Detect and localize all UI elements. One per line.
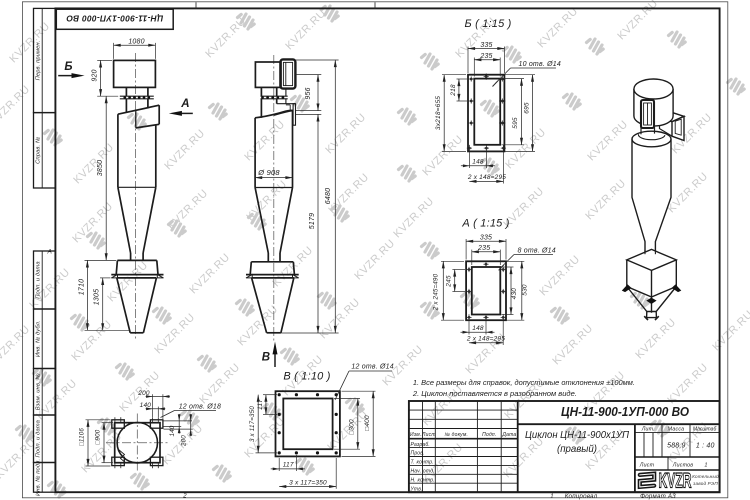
svg-text:Изм.: Изм. [410, 432, 421, 438]
svg-text:140: 140 [140, 402, 152, 409]
svg-text:Инв. № подл.: Инв. № подл. [35, 459, 41, 496]
svg-text:956: 956 [305, 87, 312, 99]
svg-text:Лит.: Лит. [641, 426, 655, 432]
svg-text:□900: □900 [95, 429, 102, 444]
svg-text:3 х 117=350: 3 х 117=350 [289, 479, 327, 486]
svg-text:ЦН-11-900-1УП-000 ВО: ЦН-11-900-1УП-000 ВО [561, 405, 689, 419]
svg-text:2 х 245=490: 2 х 245=490 [433, 273, 440, 311]
svg-text:□1106: □1106 [79, 428, 86, 446]
svg-text:Ø 908: Ø 908 [257, 168, 280, 177]
svg-text:430: 430 [511, 288, 518, 300]
svg-text:Формат А3: Формат А3 [640, 493, 676, 500]
svg-text:Т. контр.: Т. контр. [411, 460, 434, 466]
svg-text:595: 595 [512, 117, 519, 129]
svg-text:А: А [180, 98, 190, 110]
svg-text:148: 148 [472, 325, 484, 332]
svg-text:Разраб.: Разраб. [411, 442, 431, 448]
svg-text:Инв. № дубл.: Инв. № дубл. [35, 320, 41, 357]
svg-text:завод РЭП: завод РЭП [692, 481, 718, 486]
svg-text:Котельный: Котельный [692, 473, 719, 479]
svg-text:920: 920 [91, 69, 98, 81]
svg-text:Дата: Дата [501, 432, 516, 438]
svg-text:(правый): (правый) [557, 443, 597, 455]
svg-text:Нач. отд.: Нач. отд. [411, 469, 435, 475]
svg-text:Перв. примен.: Перв. примен. [35, 41, 41, 81]
svg-text:1: 1 [550, 494, 554, 500]
svg-text:335: 335 [480, 235, 492, 242]
svg-text:Подп. и дата: Подп. и дата [35, 419, 41, 457]
svg-text:Б ( 1:15 ): Б ( 1:15 ) [464, 18, 511, 30]
svg-text:1080: 1080 [128, 39, 144, 46]
svg-text:140: 140 [169, 425, 176, 436]
svg-text:В ( 1:10 ): В ( 1:10 ) [283, 371, 330, 383]
svg-text:1710: 1710 [78, 279, 85, 295]
svg-text:В: В [262, 352, 271, 364]
svg-text:2. Циклон поставляется в разоб: 2. Циклон поставляется в разобранном вид… [412, 389, 577, 398]
svg-text:А ( 1:15 ): А ( 1:15 ) [461, 218, 509, 230]
svg-text:235: 235 [477, 245, 490, 252]
svg-text:3х218=655: 3х218=655 [435, 96, 442, 130]
svg-text:Б: Б [64, 61, 72, 73]
svg-text:А: А [47, 249, 53, 256]
svg-text:Утв.: Утв. [411, 486, 423, 492]
svg-text:3850: 3850 [97, 160, 104, 176]
svg-text:695: 695 [523, 102, 530, 114]
svg-text:588,9: 588,9 [667, 443, 686, 450]
svg-text:Н. контр.: Н. контр. [411, 477, 435, 483]
svg-text:8 отв. Ø14: 8 отв. Ø14 [518, 248, 556, 255]
svg-text:KVZR: KVZR [659, 470, 692, 493]
svg-text:148: 148 [472, 159, 484, 166]
svg-text:10 отв. Ø14: 10 отв. Ø14 [519, 61, 561, 68]
svg-text:1 : 40: 1 : 40 [696, 443, 715, 450]
svg-text:245: 245 [445, 275, 452, 288]
svg-text:117: 117 [283, 462, 294, 469]
svg-text:Масштаб: Масштаб [693, 426, 717, 432]
svg-text:5179: 5179 [309, 213, 316, 229]
svg-text:235: 235 [479, 53, 492, 60]
svg-text:ЦН-11-900-1УП-000 ВО: ЦН-11-900-1УП-000 ВО [66, 14, 163, 24]
svg-text:2 х 148=295: 2 х 148=295 [467, 174, 506, 181]
svg-text:Лист: Лист [639, 463, 655, 469]
svg-text:Пров.: Пров. [411, 451, 425, 457]
svg-text:1. Все размеры для справок, до: 1. Все размеры для справок, допустимые о… [413, 378, 635, 387]
svg-text:□300: □300 [348, 419, 355, 435]
svg-text:335: 335 [480, 42, 492, 49]
svg-text:Листов: Листов [672, 463, 694, 469]
svg-text:Взам. инв. №: Взам. инв. № [35, 373, 41, 410]
svg-text:2 х 148=295: 2 х 148=295 [466, 336, 505, 343]
svg-text:Справ. №: Справ. № [35, 137, 41, 164]
svg-text:1: 1 [704, 463, 707, 469]
svg-text:№ докум.: № докум. [444, 432, 468, 438]
svg-text:Масса: Масса [668, 426, 685, 432]
svg-text:200: 200 [180, 435, 187, 447]
svg-text:Копировал: Копировал [565, 493, 598, 500]
svg-text:2: 2 [182, 494, 187, 500]
svg-text:6480: 6480 [325, 188, 332, 204]
svg-text:12 отв. Ø14: 12 отв. Ø14 [351, 364, 393, 371]
svg-text:218: 218 [450, 84, 457, 97]
svg-text:Подп. и дата: Подп. и дата [35, 261, 41, 299]
svg-text:12 отв. Ø18: 12 отв. Ø18 [179, 403, 221, 410]
svg-text:3 х 117=350: 3 х 117=350 [249, 406, 256, 442]
svg-text:200: 200 [137, 390, 150, 397]
svg-text:□400: □400 [364, 415, 371, 431]
svg-text:Циклон ЦН-11-900х1УП: Циклон ЦН-11-900х1УП [525, 429, 629, 441]
svg-text:530: 530 [521, 284, 528, 296]
svg-text:Подп.: Подп. [482, 432, 496, 438]
svg-text:Лист: Лист [421, 432, 436, 438]
svg-text:1305: 1305 [93, 289, 100, 305]
